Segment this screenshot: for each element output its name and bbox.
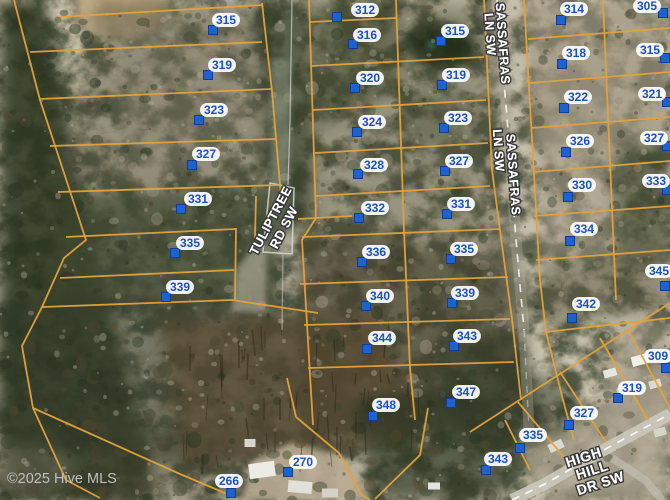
svg-text:334: 334	[574, 222, 594, 236]
svg-text:327: 327	[644, 131, 664, 145]
svg-text:323: 323	[448, 111, 468, 125]
svg-text:347: 347	[456, 385, 476, 399]
svg-text:321: 321	[642, 87, 662, 101]
svg-text:315: 315	[640, 43, 660, 57]
svg-text:LN SW: LN SW	[481, 13, 498, 57]
svg-text:340: 340	[370, 289, 390, 303]
svg-text:331: 331	[451, 197, 471, 211]
svg-text:339: 339	[170, 280, 190, 294]
svg-text:343: 343	[488, 452, 508, 466]
svg-text:320: 320	[360, 71, 380, 85]
svg-text:331: 331	[188, 192, 208, 206]
svg-text:305: 305	[637, 0, 657, 13]
svg-text:309: 309	[648, 349, 668, 363]
svg-text:LN SW: LN SW	[490, 129, 507, 173]
svg-text:339: 339	[455, 286, 475, 300]
svg-text:345: 345	[649, 264, 669, 278]
svg-text:315: 315	[445, 24, 465, 38]
svg-text:330: 330	[572, 178, 592, 192]
svg-text:322: 322	[568, 90, 588, 104]
svg-text:328: 328	[364, 158, 384, 172]
svg-text:332: 332	[365, 201, 385, 215]
svg-text:326: 326	[570, 134, 590, 148]
svg-text:319: 319	[212, 58, 232, 72]
svg-text:270: 270	[293, 455, 313, 469]
svg-text:266: 266	[219, 474, 239, 488]
svg-text:327: 327	[196, 147, 216, 161]
svg-text:318: 318	[566, 46, 586, 60]
svg-text:348: 348	[376, 398, 396, 412]
svg-text:342: 342	[576, 297, 596, 311]
svg-text:319: 319	[446, 68, 466, 82]
svg-text:344: 344	[372, 331, 392, 345]
svg-text:312: 312	[355, 3, 375, 17]
svg-text:335: 335	[180, 236, 200, 250]
svg-text:324: 324	[362, 115, 382, 129]
svg-text:336: 336	[366, 245, 386, 259]
svg-text:343: 343	[457, 329, 477, 343]
svg-text:316: 316	[357, 28, 377, 42]
svg-text:327: 327	[574, 406, 594, 420]
svg-text:©2025 Hive MLS: ©2025 Hive MLS	[7, 471, 117, 487]
svg-text:319: 319	[622, 381, 642, 395]
svg-text:335: 335	[523, 428, 543, 442]
svg-text:333: 333	[646, 174, 666, 188]
svg-text:315: 315	[216, 13, 236, 27]
svg-text:323: 323	[204, 103, 224, 117]
svg-text:327: 327	[449, 154, 469, 168]
svg-text:314: 314	[564, 2, 584, 16]
svg-text:335: 335	[454, 242, 474, 256]
